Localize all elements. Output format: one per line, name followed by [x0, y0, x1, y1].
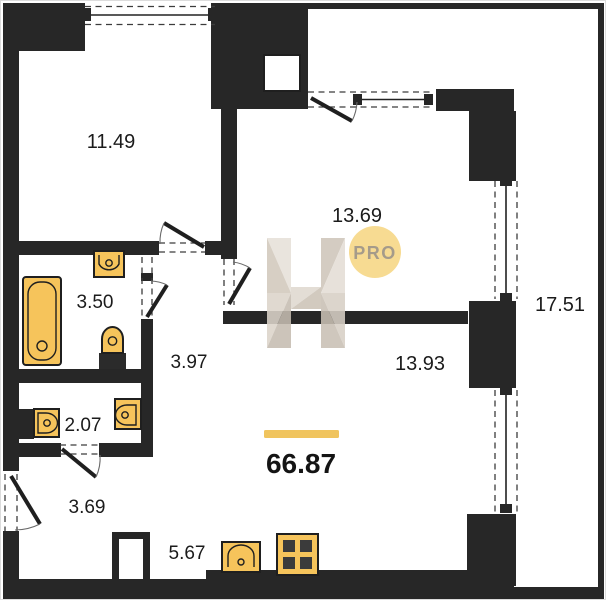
area-label-entry-hall: 3.69	[69, 497, 106, 518]
wall	[221, 109, 237, 259]
wall	[99, 443, 153, 457]
area-label-room-b: 13.93	[395, 353, 445, 375]
door-leaf	[11, 476, 40, 524]
vent-shaft	[264, 55, 300, 91]
duct-shaft	[119, 539, 143, 579]
toilet-bowl	[102, 327, 123, 353]
toilet-fixture	[99, 327, 126, 369]
stove-burner	[283, 540, 295, 552]
area-label-room-a: 11.49	[87, 131, 136, 153]
wall	[19, 369, 141, 383]
total-area-accent-bar	[264, 430, 339, 438]
door-leaf	[147, 285, 167, 317]
sink-cabinet	[19, 409, 34, 439]
wall-mid	[223, 311, 468, 324]
total-area: 66.87	[264, 430, 339, 479]
door-leaf	[62, 449, 96, 477]
area-label-kitchen-living: 13.69	[332, 205, 382, 227]
kitchen-sink-fixture	[222, 542, 260, 572]
wall	[19, 241, 159, 255]
terrace-wall-bottom	[514, 587, 604, 599]
stove-burner	[283, 557, 295, 569]
washbasin-fixture	[94, 251, 124, 277]
door-arc	[233, 262, 250, 268]
area-label-kitchen: 5.67	[169, 543, 206, 564]
wall-pillar	[469, 301, 516, 388]
floor-plan-drawing: PRO 11.49 13.69 17.51 3.50 3.97 13.93 2.…	[1, 1, 605, 599]
window-frame-end	[80, 8, 91, 21]
wall	[205, 241, 227, 255]
terrace-wall-top	[304, 3, 604, 9]
wc-washbasin-right-fixture	[115, 399, 141, 429]
door-arc	[160, 223, 164, 244]
wall	[436, 89, 514, 111]
window-frame-end	[500, 504, 512, 513]
door-leaf	[229, 268, 250, 304]
door-arc	[15, 524, 40, 530]
stove-burner	[300, 540, 312, 552]
pro-badge: PRO	[349, 226, 401, 278]
pro-badge-label: PRO	[353, 243, 397, 263]
window-frame-end	[500, 177, 512, 186]
floor-plan: PRO 11.49 13.69 17.51 3.50 3.97 13.93 2.…	[0, 0, 606, 600]
stove-fixture	[277, 534, 318, 575]
window-frame-end	[500, 386, 512, 395]
wall	[3, 3, 19, 471]
window-frame-end	[353, 94, 362, 105]
wall-pillar	[469, 111, 516, 181]
window-frame-end	[424, 94, 433, 105]
door-arc	[96, 455, 100, 477]
wall	[141, 273, 153, 281]
door-leaf	[311, 98, 352, 121]
wc-washbasin-left-fixture	[34, 409, 59, 437]
area-label-wc: 2.07	[65, 415, 102, 436]
wall	[141, 319, 153, 445]
area-label-hallway: 3.97	[171, 352, 208, 373]
door-arc	[151, 281, 167, 285]
area-label-bathroom: 3.50	[77, 292, 114, 313]
wall	[19, 443, 61, 457]
terrace-wall-right	[598, 3, 604, 599]
watermark-logo	[267, 238, 345, 348]
wall-pillar	[467, 514, 516, 586]
window-frame-end	[208, 8, 219, 21]
bathtub-fixture	[23, 277, 61, 365]
stove-burner	[300, 557, 312, 569]
toilet-tank	[99, 353, 126, 369]
wall	[3, 3, 85, 51]
window-frame-end	[500, 293, 512, 302]
area-label-terrace: 17.51	[535, 294, 585, 316]
total-area-value: 66.87	[266, 448, 336, 479]
